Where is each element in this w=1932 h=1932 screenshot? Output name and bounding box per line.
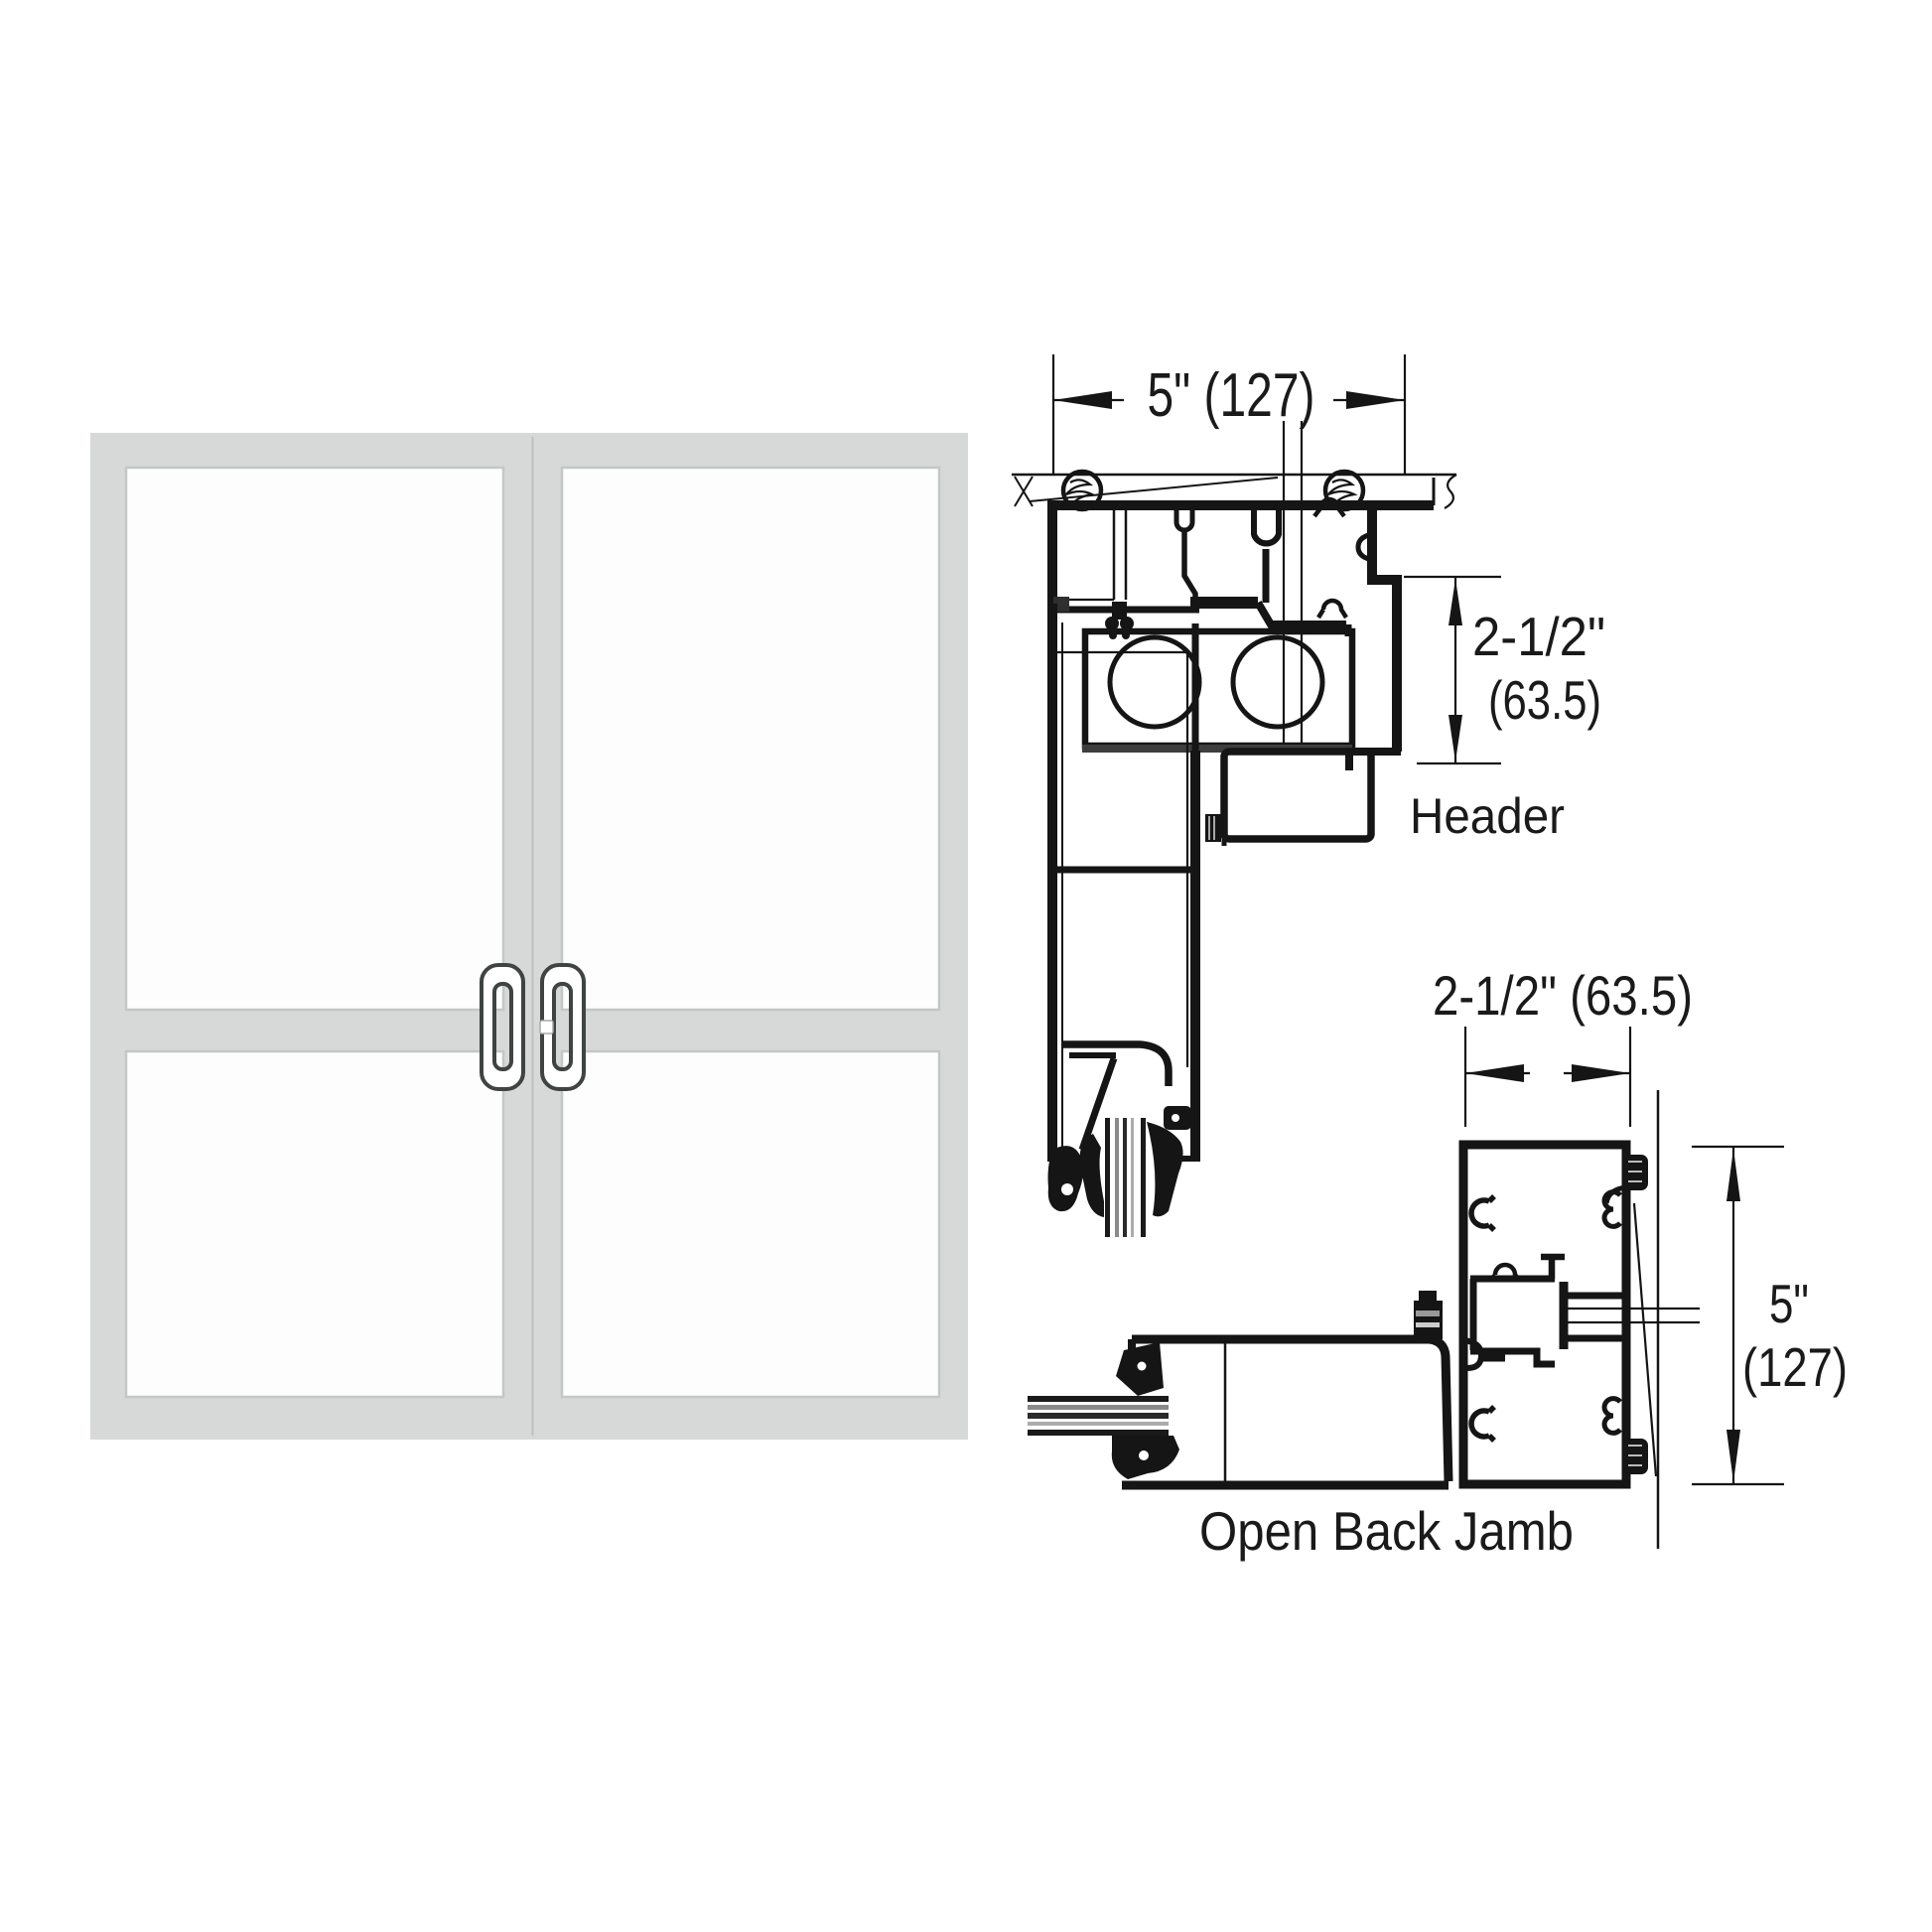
svg-text:(127): (127) xyxy=(1742,1336,1848,1398)
svg-text:5": 5" xyxy=(1769,1273,1809,1334)
svg-text:2-1/2" (63.5): 2-1/2" (63.5) xyxy=(1433,964,1693,1027)
svg-text:5" (127): 5" (127) xyxy=(1148,361,1315,430)
svg-text:Open Back Jamb: Open Back Jamb xyxy=(1199,1500,1574,1562)
svg-text:(63.5): (63.5) xyxy=(1488,669,1601,731)
svg-text:2-1/2": 2-1/2" xyxy=(1472,606,1605,667)
svg-text:Header: Header xyxy=(1410,788,1565,844)
